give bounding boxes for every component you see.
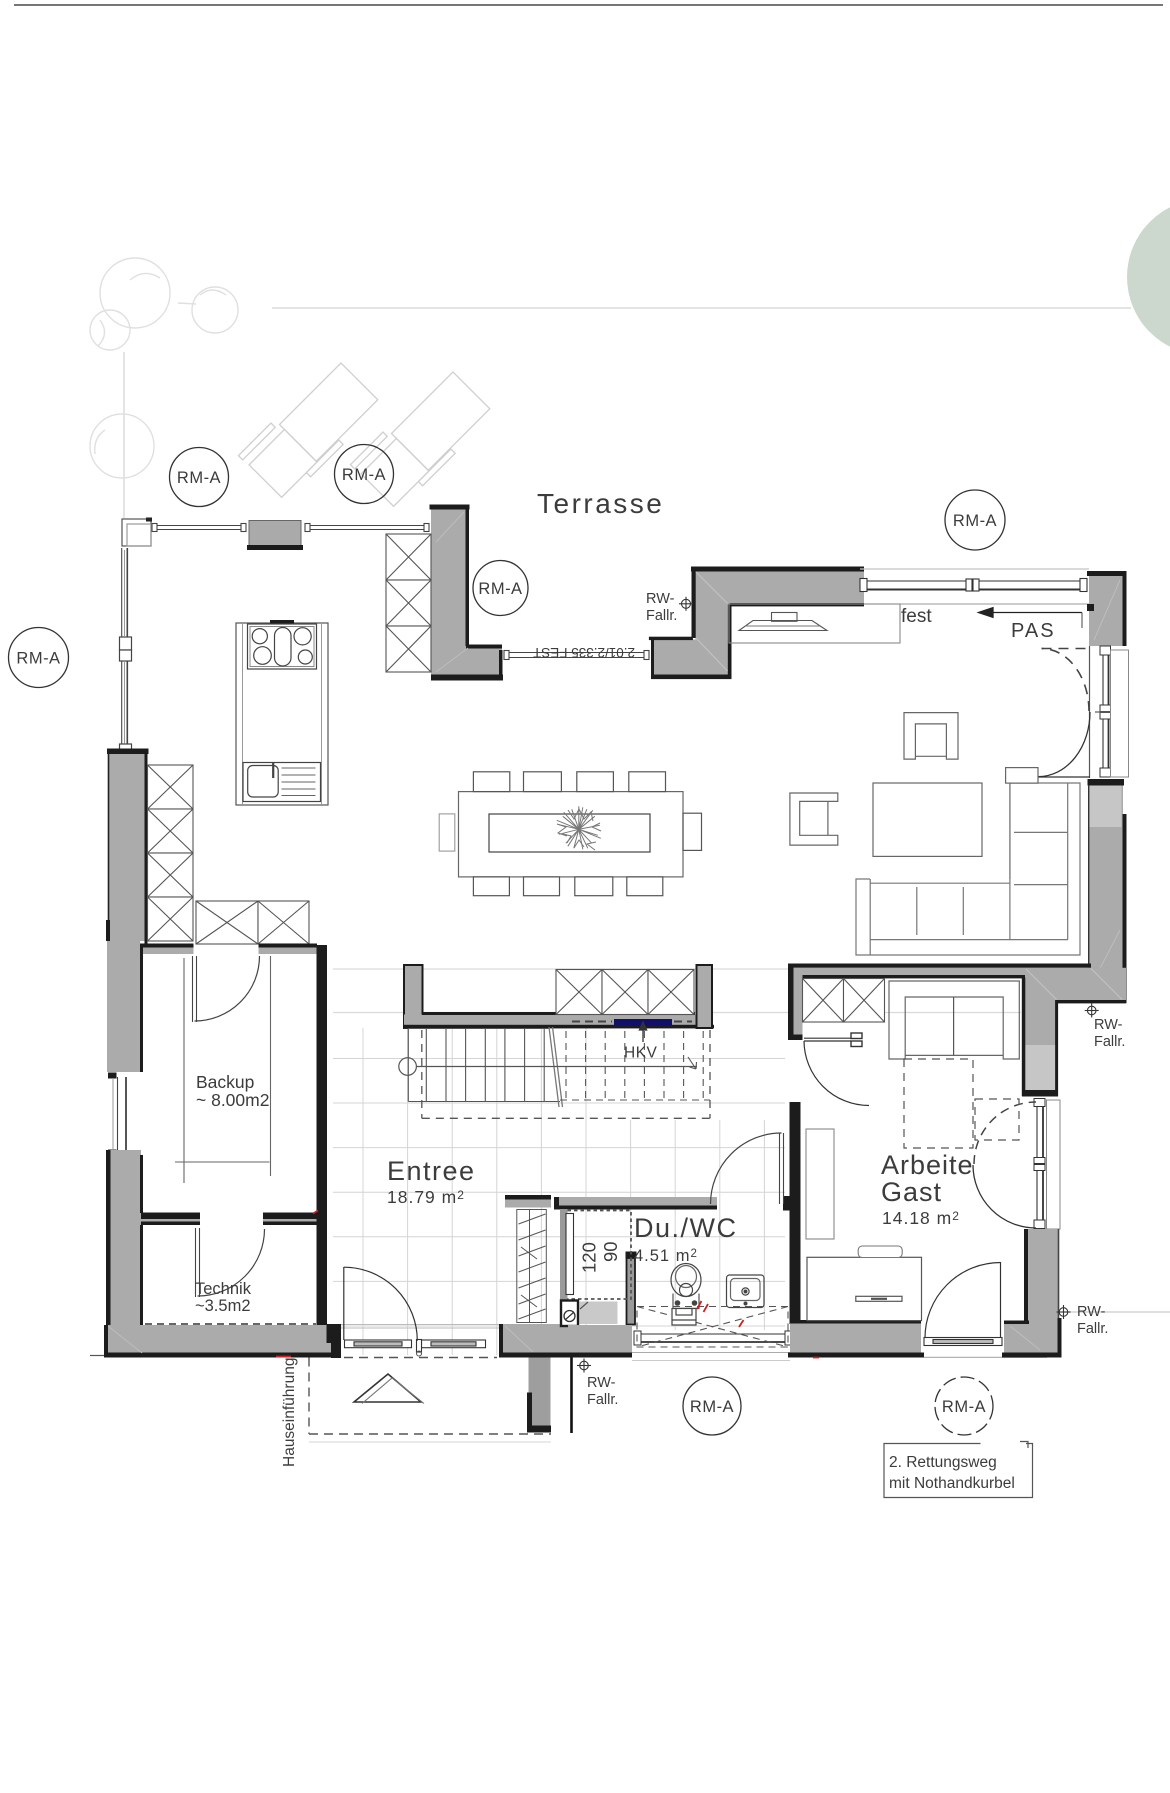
- svg-text:Fallr.: Fallr.: [646, 608, 677, 624]
- svg-text:Du./WC: Du./WC: [634, 1213, 738, 1243]
- svg-text:90: 90: [600, 1241, 621, 1262]
- svg-text:Technik: Technik: [195, 1280, 252, 1298]
- svg-text:HKV: HKV: [624, 1045, 658, 1062]
- svg-text:fest: fest: [901, 606, 932, 627]
- svg-text:RM-A: RM-A: [478, 580, 522, 598]
- svg-text:mit Nothandkurbel: mit Nothandkurbel: [889, 1475, 1015, 1492]
- svg-text:120: 120: [579, 1242, 600, 1273]
- svg-text:RM-A: RM-A: [942, 1398, 986, 1416]
- svg-text:Fallr.: Fallr.: [1094, 1034, 1125, 1050]
- svg-text:Backup: Backup: [196, 1072, 254, 1092]
- svg-text:14.18 m2: 14.18 m2: [882, 1208, 960, 1228]
- svg-text:2.01/2.335 FEST: 2.01/2.335 FEST: [533, 645, 635, 660]
- svg-text:RM-A: RM-A: [177, 469, 221, 487]
- svg-text:RW-: RW-: [1094, 1017, 1123, 1033]
- svg-text:RW-: RW-: [587, 1375, 616, 1391]
- svg-text:Fallr.: Fallr.: [587, 1392, 618, 1408]
- svg-text:2. Rettungsweg: 2. Rettungsweg: [889, 1454, 997, 1471]
- svg-text:RW-: RW-: [1077, 1304, 1106, 1320]
- svg-text:Terrasse: Terrasse: [537, 488, 664, 519]
- svg-text:RM-A: RM-A: [342, 466, 386, 484]
- svg-text:Hauseinführung: Hauseinführung: [281, 1358, 298, 1467]
- svg-text:RW-: RW-: [646, 591, 675, 607]
- svg-text:Fallr.: Fallr.: [1077, 1321, 1108, 1337]
- svg-text:~3.5m2: ~3.5m2: [195, 1297, 251, 1315]
- svg-text:Gast: Gast: [881, 1177, 942, 1207]
- svg-text:Entree: Entree: [387, 1156, 476, 1186]
- svg-text:4.51 m2: 4.51 m2: [634, 1247, 698, 1265]
- svg-text:18.79 m2: 18.79 m2: [387, 1187, 465, 1207]
- svg-text:RM-A: RM-A: [16, 650, 60, 668]
- svg-text:RM-A: RM-A: [953, 512, 997, 530]
- svg-text:PAS: PAS: [1011, 620, 1056, 642]
- svg-text:~ 8.00m2: ~ 8.00m2: [196, 1090, 269, 1110]
- svg-text:Arbeite: Arbeite: [881, 1150, 974, 1180]
- svg-text:RM-A: RM-A: [690, 1398, 734, 1416]
